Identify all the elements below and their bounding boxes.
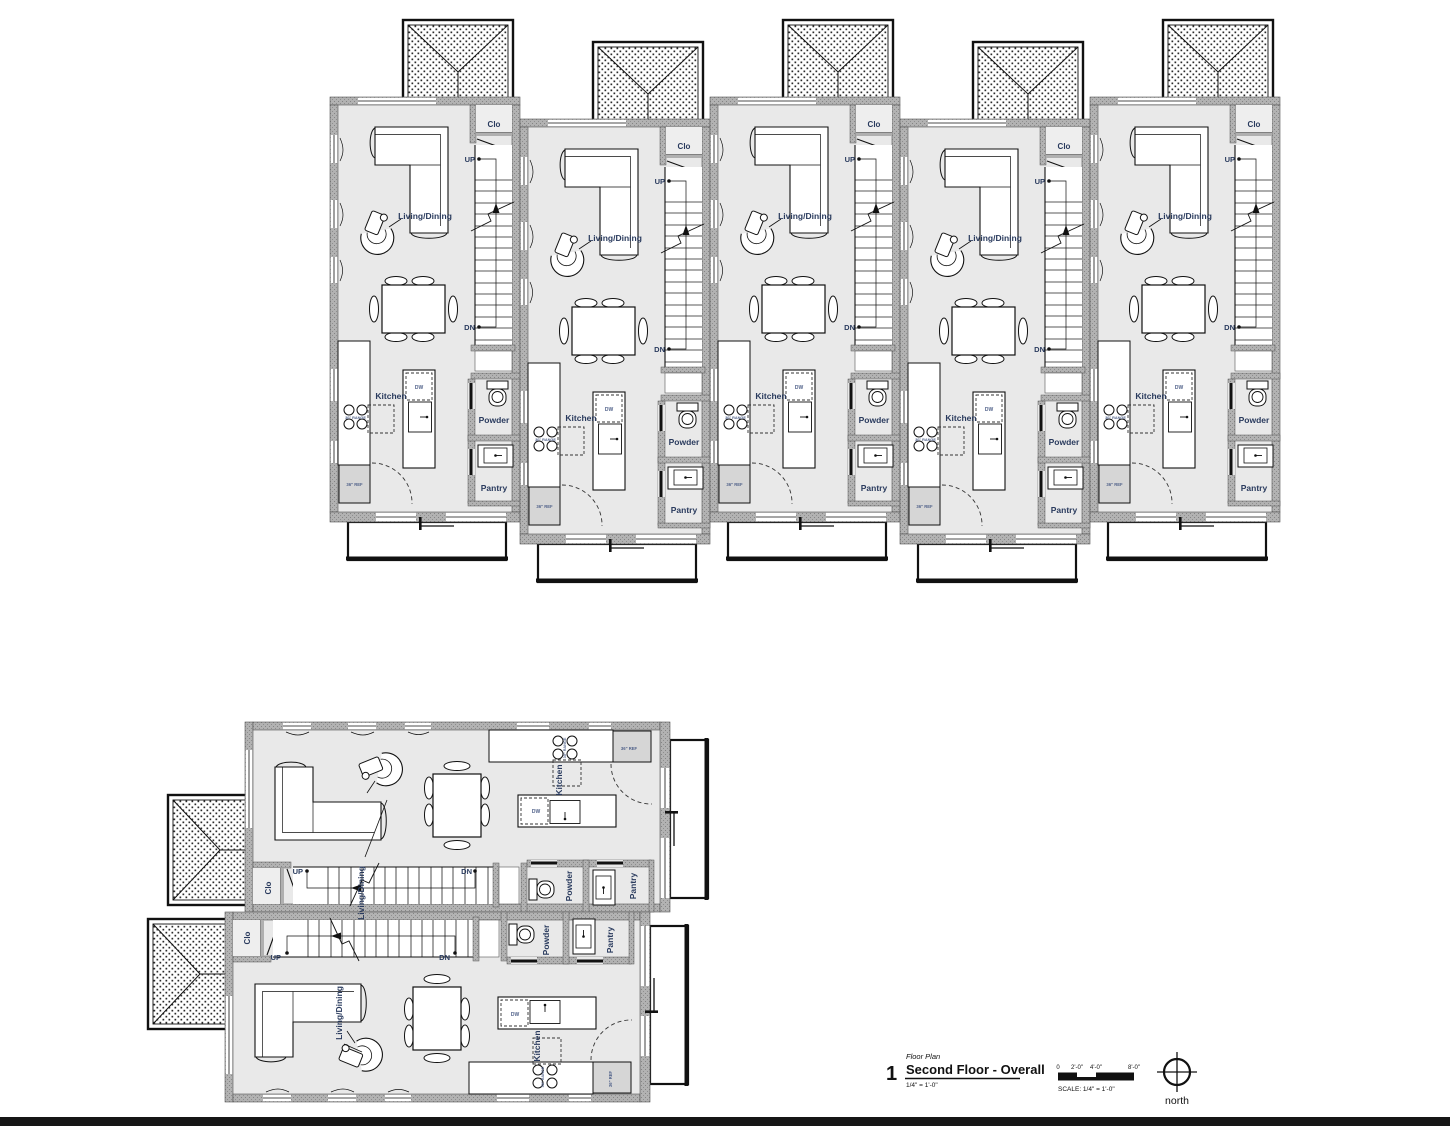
refrigerator-label: 36" REF xyxy=(608,1070,613,1087)
range-label: 30" RANGE xyxy=(563,737,567,758)
drawing-title: Second Floor - Overall xyxy=(906,1062,1045,1077)
down-label: DN xyxy=(461,867,472,876)
drawing-category: Floor Plan xyxy=(906,1052,940,1061)
title-block: 1 Floor Plan Second Floor - Overall 1/4"… xyxy=(886,1052,1045,1089)
floor-plan-sheet: Clo UP DN Living/Dining Kitchen Powder P… xyxy=(0,0,1450,1126)
scale-tick-2: 4'-0" xyxy=(1090,1065,1102,1071)
scale-tick-1: 2'-0" xyxy=(1071,1065,1083,1071)
closet-label: Clo xyxy=(243,931,252,944)
sheet-border-bar xyxy=(0,1117,1450,1126)
scale-caption: SCALE: 1/4" = 1'-0" xyxy=(1058,1086,1115,1093)
down-label: DN xyxy=(439,953,450,962)
living-dining-label: Living/Dining xyxy=(356,866,366,920)
drawing-scale-note: 1/4" = 1'-0" xyxy=(906,1082,938,1089)
scale-tick-3: 8'-0" xyxy=(1128,1065,1140,1071)
pantry-label: Pantry xyxy=(628,873,638,900)
powder-label: Powder xyxy=(541,924,551,955)
floor-plan-drawing: Clo UP DN Living/Dining Kitchen Powder P… xyxy=(0,0,1450,1126)
up-label: UP xyxy=(271,953,281,962)
dishwasher-label: DW xyxy=(532,809,541,815)
pantry-label: Pantry xyxy=(605,927,615,954)
townhouse-unit-2 xyxy=(520,42,710,582)
dishwasher-label: DW xyxy=(511,1012,520,1018)
living-dining-label: Living/Dining xyxy=(334,986,344,1040)
up-label: UP xyxy=(293,867,303,876)
refrigerator-label: 36" REF xyxy=(621,746,638,751)
scale-bar: 0 2'-0" 4'-0" 8'-0" SCALE: 1/4" = 1'-0" xyxy=(1056,1065,1140,1093)
range-label: 30" RANGE xyxy=(541,1066,545,1087)
kitchen-label: Kitchen xyxy=(532,1030,542,1061)
closet-label: Clo xyxy=(264,881,273,894)
powder-label: Powder xyxy=(564,870,574,901)
scale-tick-0: 0 xyxy=(1056,1065,1060,1071)
townhouse-unit-4 xyxy=(900,42,1090,582)
townhouse-unit-3 xyxy=(710,20,900,560)
townhouse-unit-5 xyxy=(1090,20,1280,560)
north-label: north xyxy=(1165,1095,1189,1107)
north-arrow: north xyxy=(1157,1052,1197,1107)
townhouse-unit-1 xyxy=(330,20,520,560)
kitchen-label: Kitchen xyxy=(554,764,564,795)
callout-number: 1 xyxy=(886,1063,897,1085)
